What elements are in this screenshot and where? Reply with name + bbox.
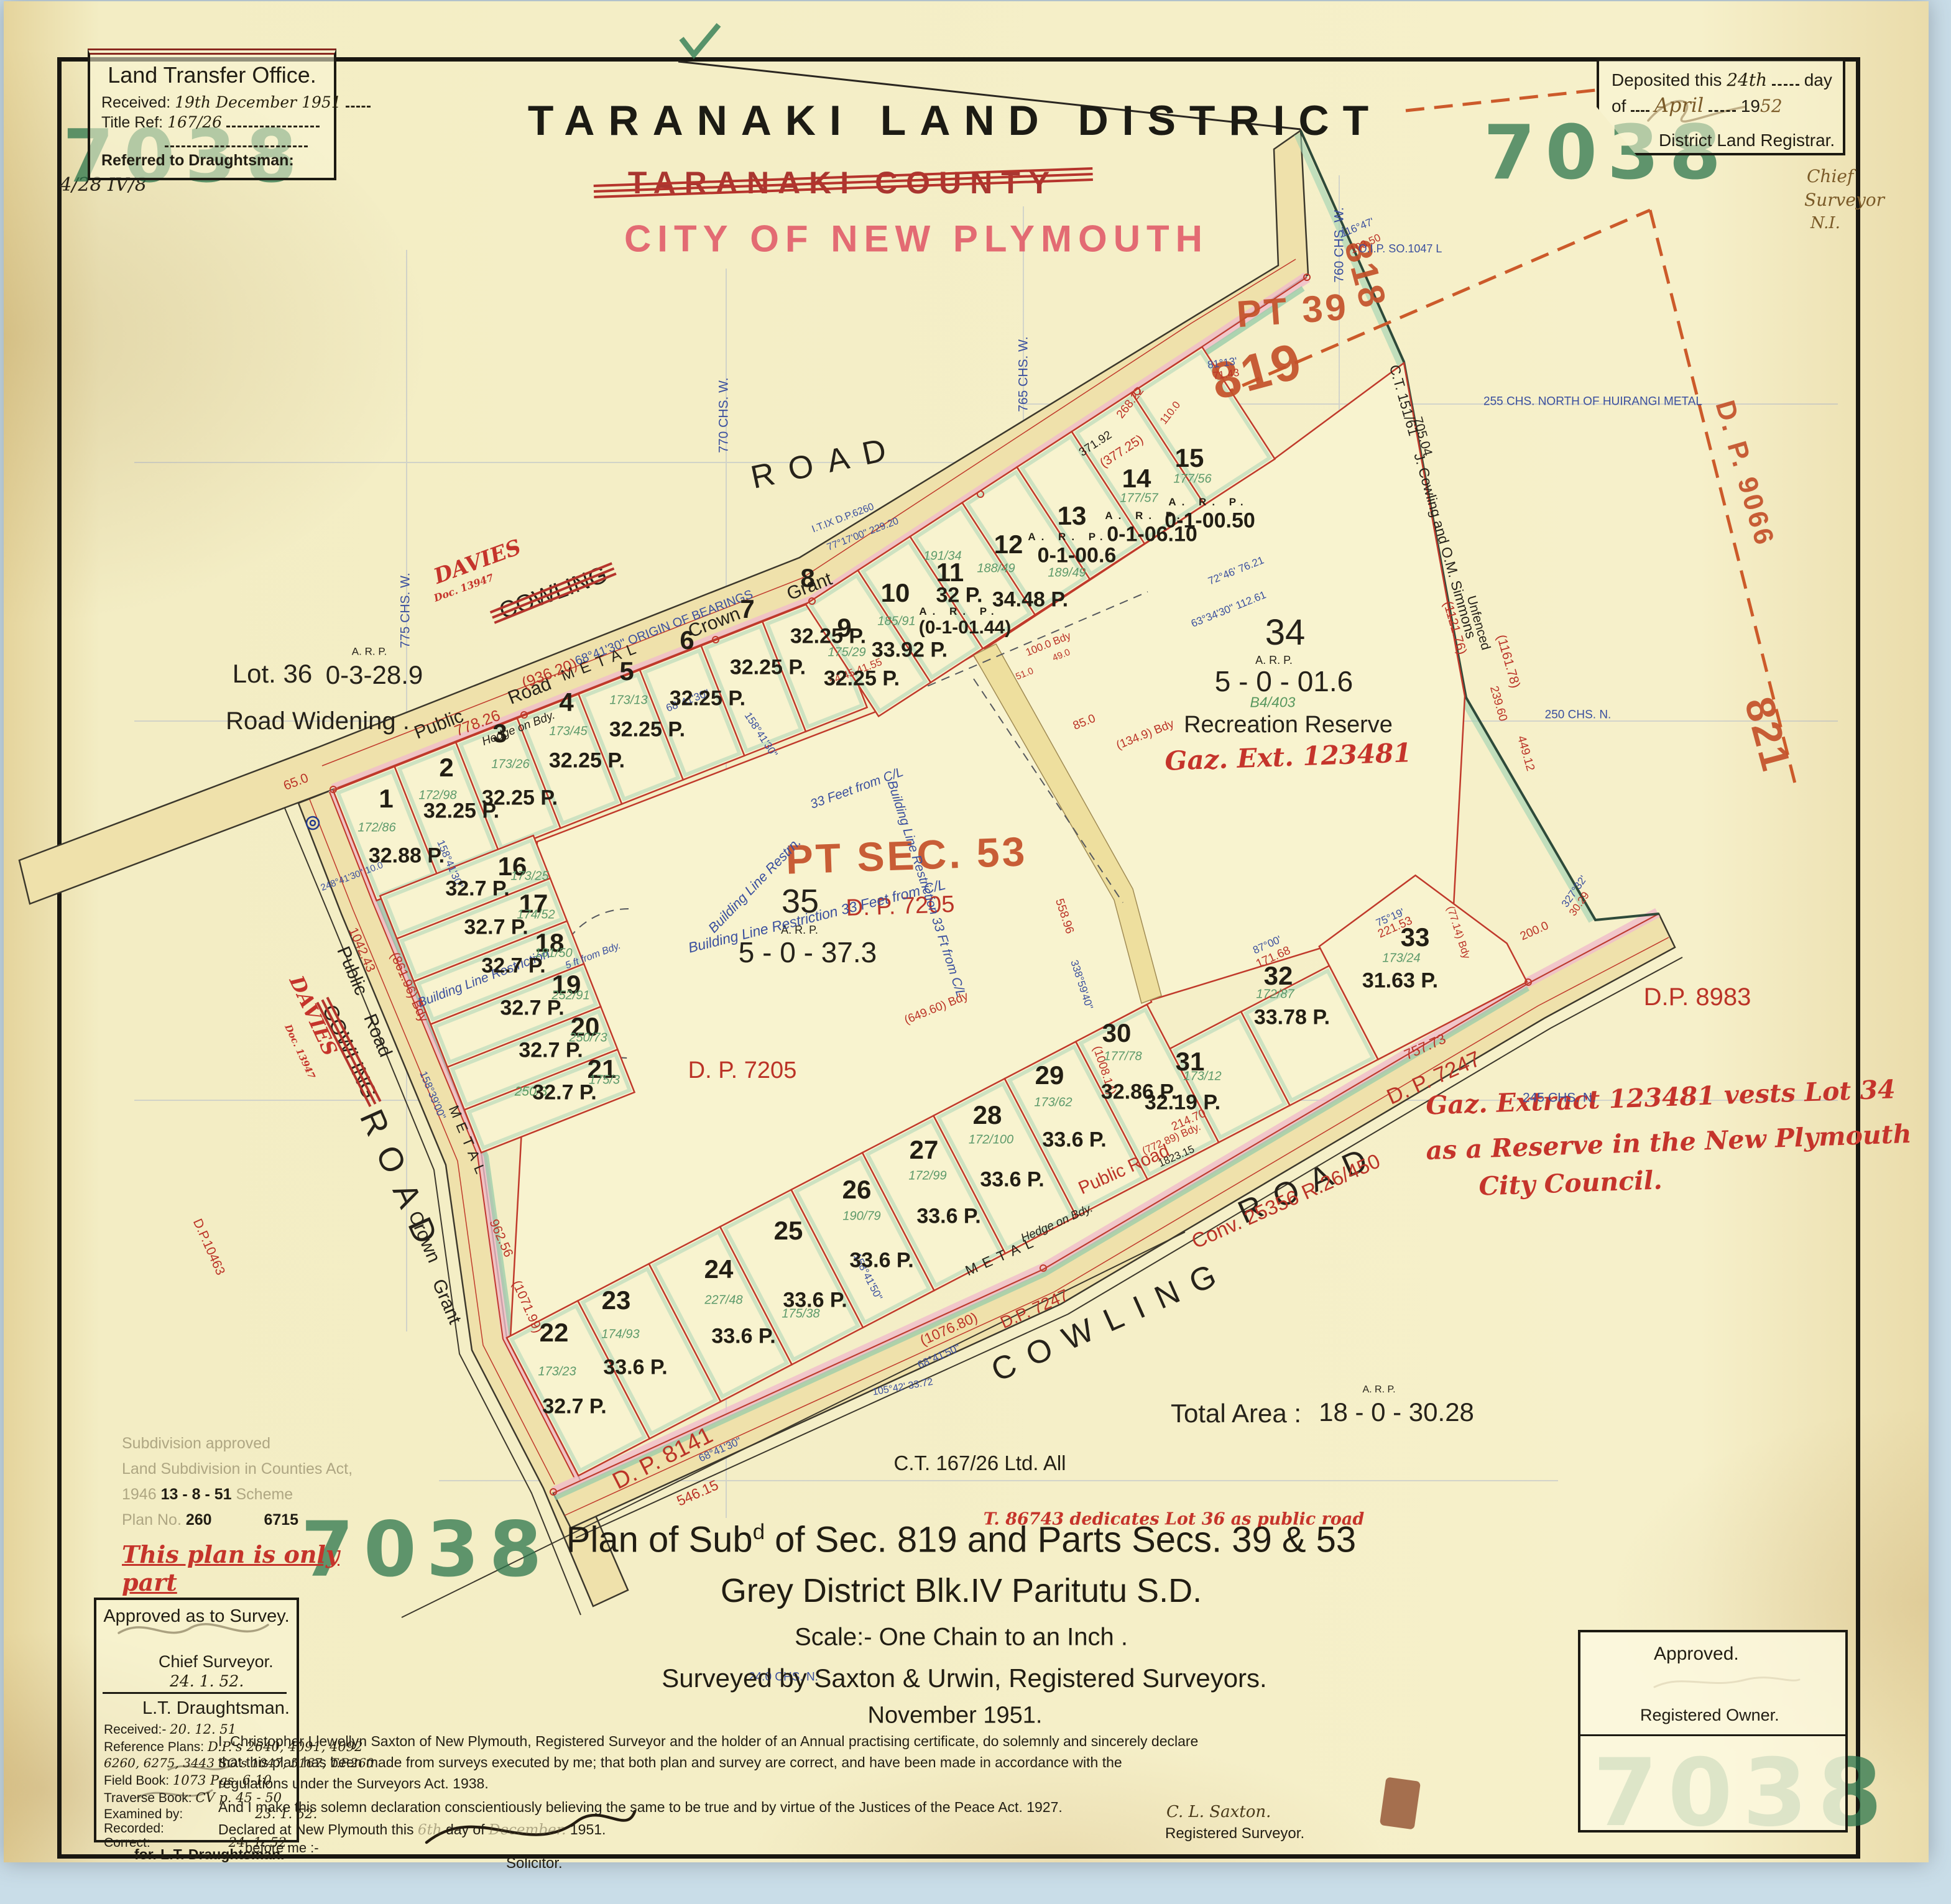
subdiv-l1: Subdivision approved	[122, 1435, 383, 1453]
lot-7-number: 7	[740, 594, 754, 624]
deposited-day-word: day	[1804, 70, 1832, 90]
lot-26-area: 33.6 P.	[849, 1249, 913, 1273]
lot-14-number: 14	[1122, 464, 1151, 494]
lto-title: Land Transfer Office.	[90, 62, 334, 88]
plan-label: 775 CHS. W.	[399, 573, 412, 648]
lot-13-number: 13	[1058, 501, 1087, 531]
lot-13-ref: 189/49	[1048, 566, 1086, 581]
lot-3-ref: 173/26	[491, 758, 529, 772]
ruling	[165, 133, 308, 147]
subdiv-planno-label: Plan No.	[122, 1511, 182, 1529]
before-me: before me :-	[245, 1840, 319, 1856]
lot-5-area: 32.25 P.	[609, 718, 685, 742]
lot-8-number: 8	[800, 563, 814, 593]
declaration-line4: And I make this solemn declaration consc…	[218, 1799, 1063, 1816]
registered-owner-box: Approved. Registered Owner.	[1578, 1630, 1848, 1833]
lot-35-area: 5 - 0 - 37.3	[739, 938, 877, 967]
deposited-day: 24th	[1727, 70, 1767, 90]
lot-34-area: 5 - 0 - 01.6	[1215, 667, 1353, 696]
survey-approved-title: Approved as to Survey.	[96, 1606, 297, 1627]
lot-31-ref: 173/12	[1183, 1070, 1221, 1084]
lot-4-ref: 173/45	[549, 725, 587, 739]
lot-9-ref: 175/29	[828, 646, 865, 660]
declared-day: 6th	[418, 1822, 442, 1838]
lot-2-ref: 172/98	[418, 789, 456, 803]
declaration-line2: that this plan has been made from survey…	[218, 1754, 1122, 1771]
lt-draughtsman-title: L.T. Draughtsman.	[142, 1698, 290, 1719]
subdiv-scheme: Scheme	[236, 1486, 293, 1503]
lot-12-ref: 188/49	[977, 562, 1015, 576]
lot-9-area: 32.25 P.	[824, 667, 900, 691]
plan-label: 250 CHS. N.	[1545, 709, 1612, 721]
title-district: TARANAKI LAND DISTRICT	[528, 96, 1382, 145]
surveyor-signature-name: C. L. Saxton.	[1166, 1803, 1271, 1821]
lot-32-ref: 172/87	[1256, 988, 1294, 1002]
lot-4-area: 32.25 P.	[549, 749, 625, 773]
wax-seal	[1380, 1777, 1421, 1829]
plan-label: D.P. 8983	[1644, 985, 1751, 1009]
lot-23-area: 33.6 P.	[603, 1356, 667, 1380]
lot-14-ref: 177/57	[1120, 492, 1158, 506]
solicitor-label: Solicitor.	[506, 1855, 563, 1872]
sb-recorded-label: Recorded:	[104, 1821, 164, 1836]
deposited-month: April	[1654, 93, 1704, 117]
lot-32-area: 33.78 P.	[1254, 1006, 1330, 1030]
plan-label: 760 CHS. W.	[1333, 207, 1346, 282]
lot-13-arp: A. R. P.	[1028, 531, 1108, 543]
lot-26-ref: 190/79	[842, 1210, 880, 1224]
plan-label: B4/403	[1250, 696, 1296, 710]
lot-27-ref: 172/99	[908, 1169, 946, 1184]
lot-33-area: 31.63 P.	[1362, 969, 1438, 993]
lot-36-note: Lot. 36	[233, 661, 312, 687]
lot-13-area: 0-1-00.6	[1038, 544, 1117, 568]
approved-label: Approved.	[1654, 1644, 1739, 1665]
lot-3-number: 3	[492, 719, 507, 748]
plan-title: Plan of Subd of Sec. 819 and Parts Secs.…	[566, 1519, 1356, 1561]
lot-25-number: 25	[774, 1216, 803, 1246]
total-area-label: Total Area :	[1171, 1400, 1301, 1427]
lot-27-number: 27	[910, 1135, 939, 1165]
lot-23-ref: 174/93	[601, 1328, 639, 1342]
declaration-line3: regulations under the Surveyors Act. 193…	[218, 1775, 489, 1792]
lot-26-number: 26	[842, 1175, 872, 1205]
deposited-line1: Deposited this	[1612, 70, 1722, 90]
plan-label: O.I.P. SO.1047 L	[1358, 243, 1442, 254]
plan-title-sup: d	[753, 1520, 765, 1544]
lot-3-area: 32.25 P.	[482, 786, 558, 811]
lot-11-ref: 191/34	[923, 550, 961, 564]
plan-label: 770 CHS. W.	[717, 377, 731, 453]
lot-1-number: 1	[379, 784, 393, 814]
plan-label: A. R. P.	[1362, 1385, 1395, 1395]
lto-received-value: 19th December 1951	[175, 93, 341, 111]
lot-32-number: 32	[1264, 961, 1293, 991]
lot-11-area2: (0-1-01.44)	[919, 617, 1011, 638]
lot-24-area: 33.6 P.	[711, 1325, 775, 1349]
pt-39-label: PT 39	[1235, 288, 1350, 333]
lot-25-ref: 175/38	[782, 1307, 819, 1322]
lot-21-area: 32.7 P.	[532, 1081, 596, 1105]
surveyed-by: Surveyed by Saxton & Urwin, Registered S…	[662, 1663, 1266, 1693]
subdiv-l3: 1946	[122, 1486, 157, 1503]
lto-received-label: Received:	[101, 94, 170, 111]
plan-title-post: of Sec. 819 and Parts Secs. 39 & 53	[765, 1520, 1356, 1560]
paper-sheet: 34A. R. P.5 - 0 - 01.6B4/403Recreation R…	[4, 1, 1929, 1862]
ruling	[1709, 98, 1736, 112]
total-area-value: 18 - 0 - 30.28	[1319, 1399, 1474, 1425]
lot-15-ref: 177/56	[1173, 472, 1211, 487]
lot-15-arp: A. R. P.	[1168, 496, 1248, 508]
chief-surveyor-note: N.I.	[1810, 215, 1840, 231]
sb-received-label: Received:-	[104, 1722, 166, 1737]
plan-label: 0-3-28.9	[326, 662, 423, 688]
lot-9-number: 9	[837, 613, 851, 643]
subdiv-planno-1: 260	[186, 1511, 212, 1529]
divider	[1580, 1734, 1845, 1736]
check-mark	[681, 25, 719, 55]
lot-34-number: 34	[1265, 615, 1306, 651]
lot-12-area: 34.48 P.	[992, 588, 1068, 612]
chief-surveyor-label: Chief Surveyor.	[159, 1652, 274, 1672]
scanned-survey-plan: 34A. R. P.5 - 0 - 01.6B4/403Recreation R…	[0, 0, 1951, 1904]
lot-12-number: 12	[994, 530, 1023, 559]
plan-label: 765 CHS. W.	[1017, 336, 1030, 412]
lot-16-area: 32.7 P.	[445, 877, 509, 901]
lto-titleref-label: Title Ref:	[101, 114, 163, 131]
lot-1-ref: 172/86	[357, 821, 395, 835]
lot-22-number: 22	[540, 1318, 569, 1348]
lot-7-area: 32.25 P.	[730, 656, 806, 680]
lot-28-area: 33.6 P.	[980, 1168, 1044, 1192]
lot-30-ref: 177/78	[1104, 1050, 1142, 1064]
plan-title-pre: Plan of Sub	[566, 1520, 753, 1560]
chief-surveyor-note: Chief	[1807, 168, 1853, 185]
ct-reference: C.T. 167/26 Ltd. All	[893, 1451, 1066, 1475]
plan-label: City Council.	[1478, 1167, 1663, 1199]
sb-exam-label: Examined by:	[104, 1807, 183, 1821]
lot-33-number: 33	[1401, 922, 1430, 952]
divider	[103, 1692, 287, 1694]
sb-field-label: Field Book:	[104, 1773, 169, 1788]
lot-27-area: 33.6 P.	[916, 1205, 980, 1229]
survey-date: November 1951.	[868, 1703, 1043, 1729]
subdiv-l2: Land Subdivision in Counties Act,	[122, 1460, 383, 1478]
declared-mid: day of	[446, 1821, 485, 1837]
lot-15-area: 0-1-00.50	[1165, 509, 1255, 533]
declared-month: December.	[489, 1822, 566, 1838]
registered-owner-label: Registered Owner.	[1640, 1706, 1779, 1725]
lot-16-ref: 173/25	[510, 870, 548, 884]
lot-4-number: 4	[559, 688, 573, 717]
lot-24-number: 24	[704, 1254, 734, 1284]
subdiv-date: 13 - 8 - 51	[161, 1486, 232, 1503]
chief-surveyor-note: Surveyor	[1804, 191, 1884, 209]
subdivision-stamp: Subdivision approved Land Subdivision in…	[122, 1435, 383, 1596]
plan-title-2: Grey District Blk.IV Paritutu S.D.	[721, 1571, 1202, 1610]
lot-17-ref: 174/52	[517, 908, 555, 922]
lot-23-number: 23	[602, 1285, 631, 1315]
deposited-year: 19	[1741, 96, 1760, 116]
plan-label: A. R. P.	[352, 646, 387, 657]
lot-11-area: 32 P.	[936, 584, 982, 608]
lot-1-area: 32.88 P.	[369, 844, 445, 868]
title-city: CITY OF NEW PLYMOUTH	[624, 218, 1209, 260]
declaration-line1: I, Christopher Llewellyn Saxton of New P…	[218, 1733, 1198, 1750]
lot-10-number: 10	[881, 578, 910, 608]
lot-28-number: 28	[973, 1100, 1002, 1130]
plan-label: Road Widening .	[226, 709, 410, 734]
deposited-of: of	[1612, 96, 1626, 116]
plan-label: A. R. P.	[1255, 655, 1293, 666]
lto-titleref-value: 167/26	[167, 113, 222, 131]
plan-label: 245 CHS. N.	[1523, 1092, 1596, 1105]
plan-label: D. P. 7205	[688, 1059, 797, 1082]
ruling	[226, 113, 320, 127]
lot-29-ref: 173/62	[1034, 1096, 1072, 1110]
declared-at: Declared at New Plymouth this	[218, 1821, 413, 1837]
plan-label: 255 CHS. NORTH OF HUIRANGI METAL	[1483, 396, 1702, 408]
lot-6-area: 32.25 P.	[670, 687, 745, 711]
registrar-label: District Land Registrar.	[1659, 131, 1835, 150]
lot-19-ref: 252/91	[551, 989, 589, 1003]
lot-10-ref: 185/91	[877, 615, 915, 629]
lot-31-area: 32.19 P.	[1145, 1091, 1220, 1115]
lot-20-ref: 250/73	[569, 1031, 607, 1046]
sb-ref-label: Reference Plans:	[104, 1740, 204, 1754]
chief-surveyor-date: 24. 1. 52.	[170, 1672, 244, 1690]
lot-33-ref: 173/24	[1382, 952, 1420, 966]
lot-15-number: 15	[1175, 443, 1204, 473]
lot-21-ref: 175/3	[589, 1074, 620, 1088]
ruling	[1631, 98, 1649, 112]
lot-30-number: 30	[1102, 1018, 1132, 1048]
declared-year: 1951.	[570, 1821, 606, 1837]
lot-22-area: 32.7 P.	[542, 1395, 606, 1419]
lot-28-ref: 172/100	[969, 1133, 1013, 1147]
registered-surveyor-label: Registered Surveyor.	[1165, 1825, 1304, 1842]
lot-2-number: 2	[439, 753, 453, 783]
lot-29-area: 33.6 P.	[1042, 1128, 1106, 1152]
deposited-box: Deposited this 24th day of April 1952 Di…	[1597, 58, 1845, 155]
deposited-year-suffix: 52	[1760, 96, 1783, 116]
lot-29-number: 29	[1035, 1060, 1064, 1090]
lot-10-area: 33.92 P.	[872, 638, 948, 663]
subdiv-planno-2: 6715	[264, 1511, 298, 1529]
lto-referred: Referred to Draughtsman:	[101, 152, 294, 170]
land-transfer-office-box: Land Transfer Office. Received: 19th Dec…	[88, 48, 336, 180]
ruling	[346, 93, 371, 108]
lot-24-ref: 227/48	[704, 1294, 742, 1308]
plan-scale: Scale:- One Chain to an Inch .	[795, 1624, 1128, 1652]
title-county-struck: TARANAKI COUNTY	[628, 165, 1058, 201]
sb-trav-label: Traverse Book:	[104, 1791, 192, 1805]
lot-18-ref: 181/50	[534, 947, 572, 961]
only-part-note: This plan is only part	[122, 1540, 383, 1596]
lot-5-number: 5	[619, 656, 634, 686]
lot-6-number: 6	[680, 625, 694, 655]
lot-5-ref: 173/13	[609, 694, 647, 708]
ruling	[1772, 71, 1799, 86]
lot-22-ref: 173/23	[538, 1365, 576, 1379]
recreation-reserve-label: Recreation Reserve	[1184, 713, 1393, 737]
